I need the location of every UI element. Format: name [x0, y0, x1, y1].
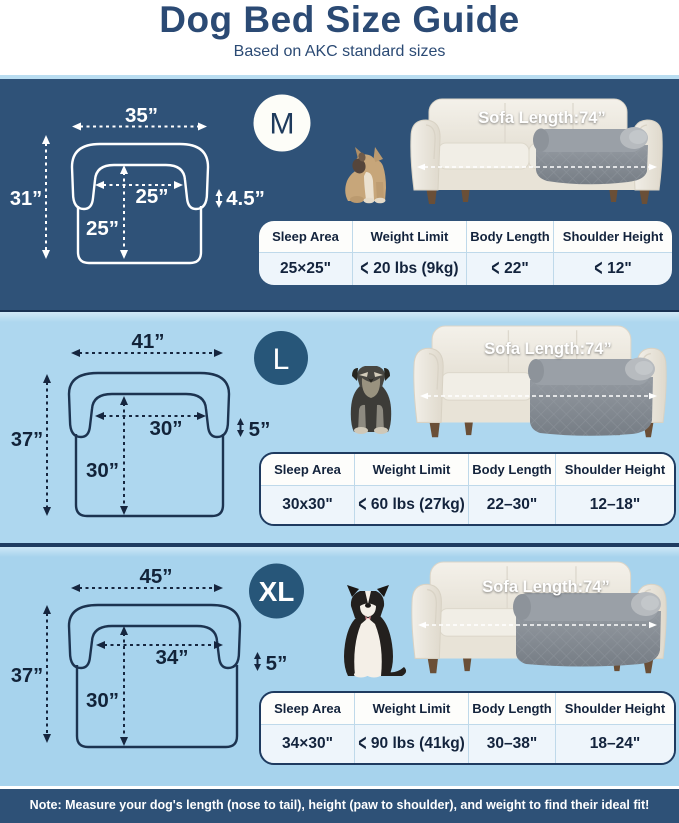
svg-text:XL: XL: [259, 576, 295, 607]
svg-text:25”: 25”: [86, 217, 119, 240]
svg-text:37”: 37”: [11, 429, 43, 451]
svg-text:45”: 45”: [139, 565, 172, 588]
svg-text:31”: 31”: [10, 188, 42, 210]
svg-text:25”: 25”: [135, 185, 168, 208]
svg-text:30”: 30”: [86, 459, 119, 482]
svg-text:30”: 30”: [149, 417, 182, 440]
svg-text:Sofa Length:74”: Sofa Length:74”: [478, 109, 605, 127]
svg-text:5”: 5”: [266, 652, 288, 675]
svg-text:30”: 30”: [86, 689, 119, 712]
svg-text:4.5”: 4.5”: [226, 187, 265, 210]
svg-text:M: M: [270, 108, 295, 141]
svg-text:35”: 35”: [125, 104, 158, 127]
svg-text:Sofa Length:74”: Sofa Length:74”: [484, 340, 611, 358]
svg-text:34”: 34”: [155, 646, 188, 669]
svg-text:Sofa Length:74”: Sofa Length:74”: [482, 578, 609, 596]
svg-text:41”: 41”: [131, 330, 164, 353]
svg-text:37”: 37”: [11, 665, 43, 687]
svg-text:L: L: [273, 343, 290, 376]
svg-text:5”: 5”: [249, 418, 271, 441]
